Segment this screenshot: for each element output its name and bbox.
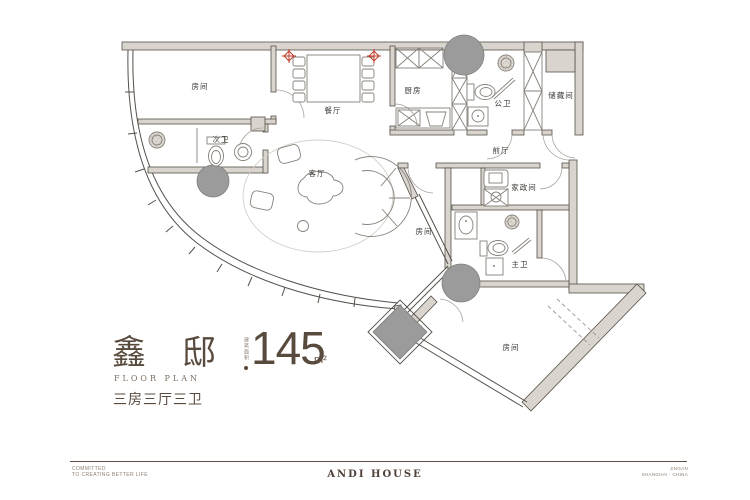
dining-table: [307, 55, 360, 102]
shower-icon: [492, 78, 513, 97]
floor-plan-subtitle: FLOOR PLAN: [114, 374, 200, 383]
area-label-dot: [244, 366, 248, 370]
room-label-bedroom-bottom-right: 房间: [503, 342, 520, 352]
room-label-storage: 储藏间: [548, 90, 574, 100]
kitchen-sink: [426, 112, 446, 126]
sink-icon: [235, 144, 252, 161]
shower-icon: [512, 238, 529, 252]
floor-drain: [149, 132, 165, 148]
footer-location-line2: SHANGHAI · CHINA: [642, 472, 688, 478]
column-round-center: [442, 264, 480, 302]
secondary-bath-fixtures: [149, 128, 252, 166]
footer-location: JINGAN SHANGHAI · CHINA: [642, 466, 688, 477]
project-name: 鑫邸: [112, 336, 252, 370]
storage-closet: [546, 50, 575, 72]
toilet-icon: [467, 84, 474, 100]
room-label-foyer: 前厅: [493, 145, 510, 155]
floor-plan-page: 房间 次卫 餐厅 厨房 公卫 储藏间 前厅 客厅 家政间 房间 主卫 房间 鑫邸…: [0, 0, 750, 500]
area-label: 建筑面积: [243, 337, 249, 363]
armchair: [249, 190, 274, 211]
room-label-living: 客厅: [309, 168, 326, 178]
column-round-top: [444, 35, 484, 75]
glass-curtain-wall: [125, 50, 406, 333]
toilet-icon: [480, 241, 487, 256]
room-label-master-bath: 主卫: [512, 259, 529, 269]
area-unit: m²: [314, 354, 327, 366]
dining-furniture: [293, 55, 374, 102]
housekeeping-fixtures: [484, 170, 508, 206]
room-label-bedroom-middle: 房间: [416, 226, 433, 236]
footer-divider: [70, 461, 687, 462]
room-label-secondary-bath: 次卫: [213, 134, 230, 144]
floor-drain: [498, 55, 514, 71]
side-table: [298, 221, 309, 232]
room-label-public-bath: 公卫: [495, 99, 512, 108]
room-label-housekeeping: 家政间: [511, 182, 537, 192]
footer-brand: ANDI HOUSE: [0, 469, 750, 480]
floor-drain: [505, 215, 519, 229]
room-label-kitchen: 厨房: [405, 85, 422, 95]
column-round-left: [197, 165, 229, 197]
armchair: [276, 143, 301, 164]
room-label-dining: 餐厅: [325, 106, 342, 115]
floor-plan-drawing: 房间 次卫 餐厅 厨房 公卫 储藏间 前厅 客厅 家政间 房间 主卫 房间: [0, 0, 750, 500]
room-label-bedroom-top-left: 房间: [192, 81, 209, 91]
layout-description: 三房三厅三卫: [113, 389, 203, 409]
